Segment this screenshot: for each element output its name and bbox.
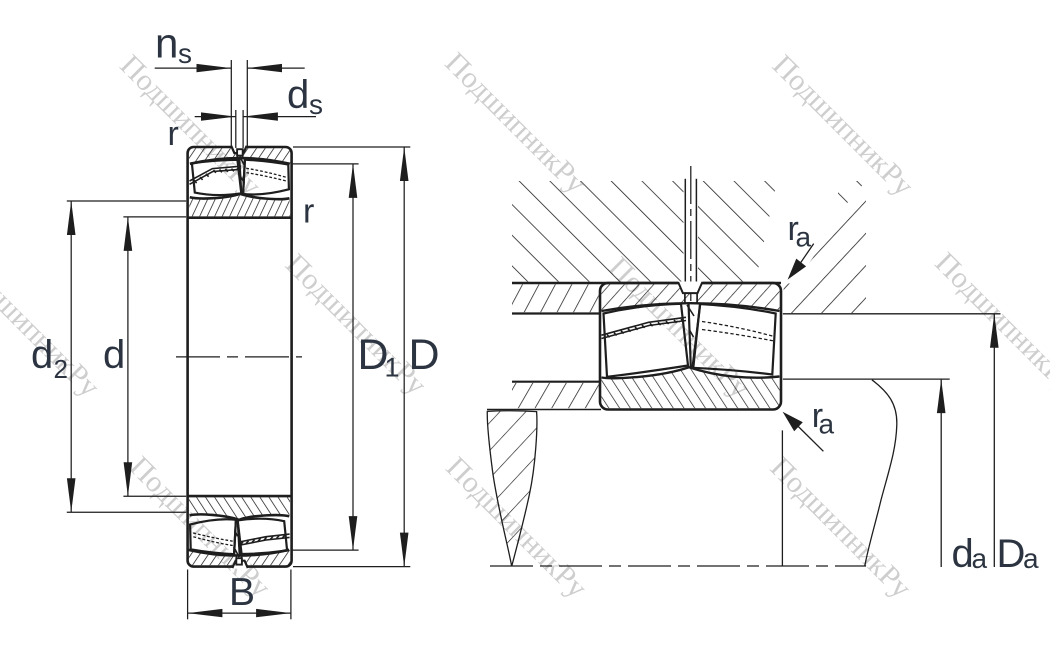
svg-text:d: d <box>952 532 974 576</box>
svg-text:2: 2 <box>54 354 68 384</box>
svg-text:D: D <box>997 532 1026 576</box>
svg-text:a: a <box>1023 543 1039 574</box>
svg-text:1: 1 <box>385 353 400 383</box>
svg-text:r: r <box>168 115 179 153</box>
svg-text:d: d <box>287 73 309 117</box>
svg-text:d: d <box>103 333 125 377</box>
svg-text:s: s <box>309 89 323 120</box>
svg-text:a: a <box>796 222 812 253</box>
svg-text:a: a <box>819 409 835 440</box>
svg-text:n: n <box>155 20 178 67</box>
svg-text:r: r <box>303 193 314 231</box>
svg-text:a: a <box>972 543 988 574</box>
svg-text:D: D <box>409 331 440 379</box>
svg-text:s: s <box>178 38 192 69</box>
svg-text:d: d <box>31 333 53 377</box>
svg-text:B: B <box>229 571 255 614</box>
